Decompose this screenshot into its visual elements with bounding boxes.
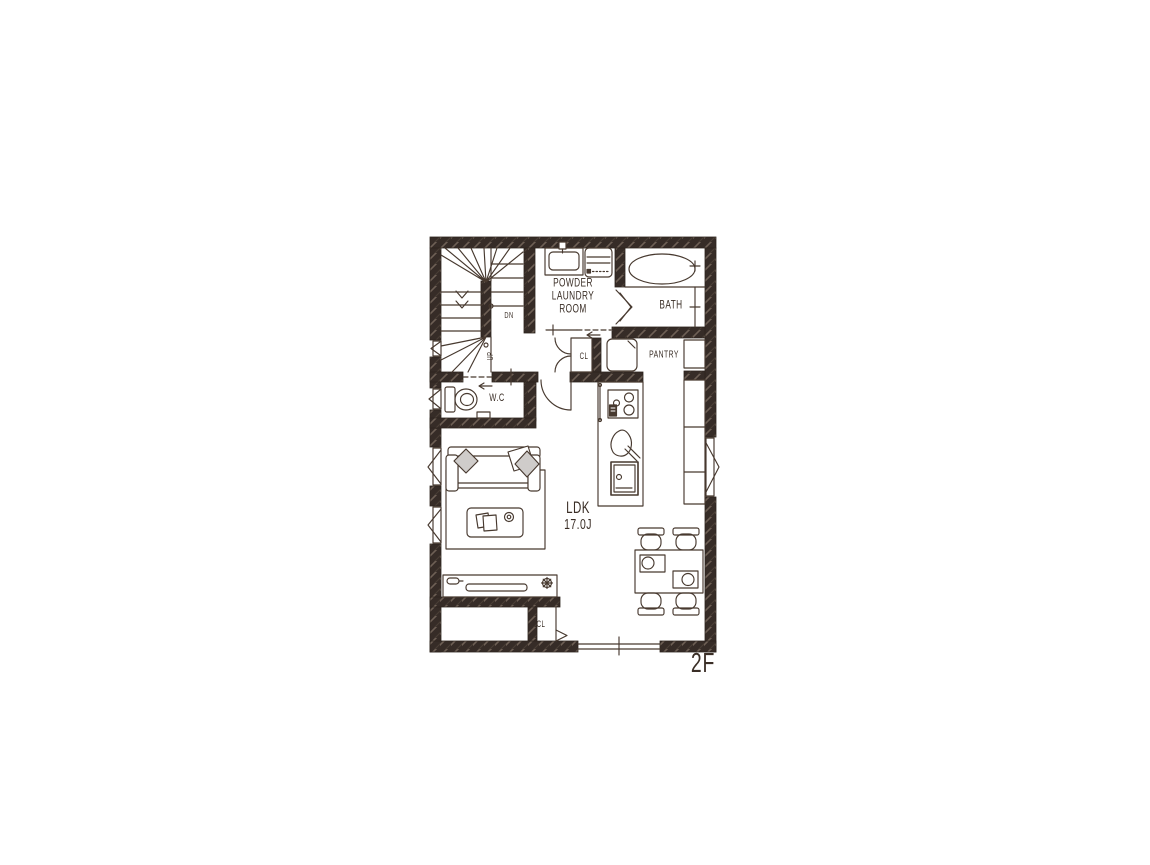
ldk-label: LDK [566, 501, 590, 518]
pantry-shelf [684, 340, 705, 368]
dining-chair-icon [673, 528, 699, 550]
tv-board-icon [443, 575, 557, 597]
plant-icon [542, 578, 553, 589]
dining-chair-icon [673, 593, 699, 615]
folding-door-icon [616, 290, 632, 324]
stairs-down-label: DN [504, 312, 513, 320]
ldk-size-label: 17.0J [564, 517, 592, 532]
dining-chair-icon [638, 528, 664, 550]
closet-door-arc [555, 338, 571, 354]
floor-plan-drawing [0, 0, 1150, 865]
door-marker-icon [556, 630, 567, 641]
bath-label: BATH [659, 300, 682, 312]
floor-plan-page: POWDER LAUNDRY ROOM BATH PANTRY CL W.C D… [0, 0, 1150, 865]
dining-chair-icon [638, 593, 664, 615]
floor-label: 2F [691, 649, 715, 677]
sofa-icon [446, 446, 540, 491]
closet-door-arc [555, 356, 571, 372]
stairs-up-label: UP [487, 352, 495, 361]
refrigerator-icon [607, 339, 637, 371]
powder-room-label-line1: POWDER [553, 278, 593, 290]
closet-lower-label: CL [537, 620, 546, 629]
window-icon [429, 389, 441, 409]
wc-label: W.C [489, 393, 505, 404]
coffee-table-icon [467, 508, 523, 537]
closet-lower [556, 607, 567, 641]
kitchen-cabinet [684, 380, 705, 504]
window-icon [578, 637, 660, 655]
kitchen [598, 380, 705, 506]
powder-room-label-line3: ROOM [559, 304, 586, 316]
ldk-door [541, 380, 571, 410]
bathtub-icon [629, 254, 695, 284]
closet-upper-label: CL [580, 352, 589, 361]
pantry-label: PANTRY [649, 350, 679, 360]
powder-room-label-line2: LAUNDRY [552, 291, 594, 303]
window-icon [428, 507, 441, 543]
living-area [443, 446, 557, 597]
dining-set [635, 528, 703, 615]
washing-machine-icon [585, 248, 612, 277]
bath [616, 254, 705, 327]
toilet-icon [445, 387, 477, 412]
window-icon [431, 341, 441, 356]
wc [445, 387, 490, 418]
window-icon [705, 438, 719, 496]
window-icon [428, 448, 441, 485]
